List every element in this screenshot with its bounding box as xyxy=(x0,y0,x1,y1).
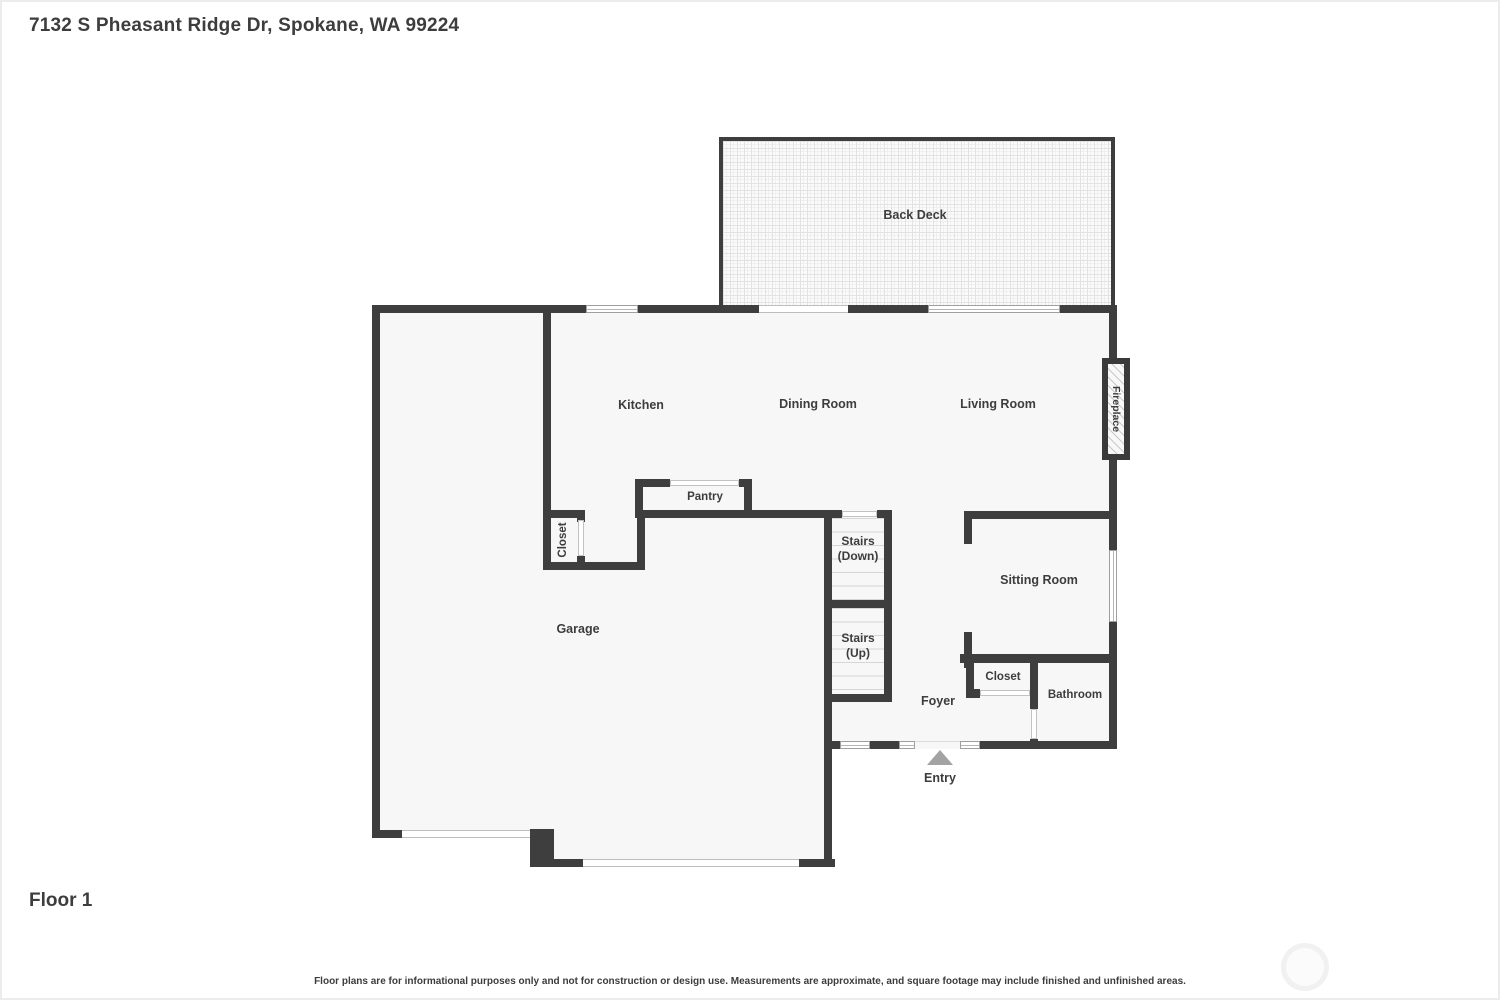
wall-segment xyxy=(1030,654,1038,709)
room-label-bathroom: Bathroom xyxy=(1048,689,1102,701)
wall-segment xyxy=(637,510,645,570)
stairs-up-line1: Stairs xyxy=(841,631,874,646)
room-label-sitting-room: Sitting Room xyxy=(1000,573,1078,587)
window xyxy=(960,741,980,749)
floor-label: Floor 1 xyxy=(29,890,92,912)
wall-segment xyxy=(1109,305,1117,360)
room-label-closet-foyer: Closet xyxy=(985,671,1020,683)
garage-door-opening xyxy=(402,830,530,838)
garage-floor-left xyxy=(376,745,829,834)
room-label-entry: Entry xyxy=(924,771,956,785)
wall-segment xyxy=(372,830,402,838)
wall-segment xyxy=(638,305,759,313)
wall-segment xyxy=(635,479,670,487)
window xyxy=(586,305,638,313)
stairs-down-line2: (Down) xyxy=(838,549,879,564)
room-label-pantry: Pantry xyxy=(687,491,723,503)
wall-segment xyxy=(980,741,1117,749)
wall-segment xyxy=(1109,459,1117,550)
wall-segment xyxy=(960,654,1117,663)
closet-door-opening xyxy=(578,520,584,556)
back-deck-area xyxy=(719,137,1115,307)
wall-segment xyxy=(828,741,840,749)
page-title: 7132 S Pheasant Ridge Dr, Spokane, WA 99… xyxy=(29,15,459,37)
wall-segment xyxy=(870,741,899,749)
window xyxy=(928,305,1060,313)
wall-segment xyxy=(832,510,842,518)
room-label-foyer: Foyer xyxy=(921,694,955,708)
wall-segment xyxy=(1109,622,1117,749)
watermark-logo xyxy=(1281,943,1329,991)
room-label-living-room: Living Room xyxy=(960,397,1036,411)
floor-plan-page: 7132 S Pheasant Ridge Dr, Spokane, WA 99… xyxy=(0,0,1500,1000)
room-label-stairs-down: Stairs (Down) xyxy=(838,534,879,564)
bathroom-door-opening xyxy=(1031,709,1037,739)
room-label-garage: Garage xyxy=(556,622,599,636)
wall-segment xyxy=(637,510,832,518)
window xyxy=(899,741,915,749)
closet-door-opening xyxy=(980,690,1030,696)
stairs-up-line2: (Up) xyxy=(841,646,874,661)
room-label-fireplace: Fireplace xyxy=(1110,386,1122,432)
wall-segment xyxy=(547,859,583,867)
wall-segment xyxy=(824,510,832,867)
wall-segment xyxy=(824,694,892,702)
wall-segment xyxy=(543,562,645,570)
entry-arrow-icon xyxy=(927,750,953,765)
entry-door-opening xyxy=(915,741,960,749)
disclaimer-text: Floor plans are for informational purpos… xyxy=(2,976,1498,987)
room-label-closet-kitchen: Closet xyxy=(557,522,569,557)
wall-segment xyxy=(824,600,892,608)
room-label-dining-room: Dining Room xyxy=(779,397,857,411)
wall-segment xyxy=(966,689,980,698)
slider-opening xyxy=(759,305,848,313)
pantry-door-opening xyxy=(670,480,739,486)
wall-segment xyxy=(372,305,380,838)
wall-segment xyxy=(964,511,1117,519)
stairs-opening xyxy=(842,511,877,517)
window xyxy=(840,741,870,749)
wall-segment xyxy=(739,479,752,487)
wall-segment xyxy=(543,305,551,570)
wall-segment xyxy=(964,511,972,544)
room-label-back-deck: Back Deck xyxy=(883,208,946,222)
wall-segment xyxy=(372,305,586,313)
garage-door-opening xyxy=(583,859,799,867)
room-label-kitchen: Kitchen xyxy=(618,398,664,412)
wall-segment xyxy=(848,305,928,313)
room-label-stairs-up: Stairs (Up) xyxy=(841,631,874,661)
window xyxy=(1109,550,1117,622)
stairs-down-line1: Stairs xyxy=(838,534,879,549)
